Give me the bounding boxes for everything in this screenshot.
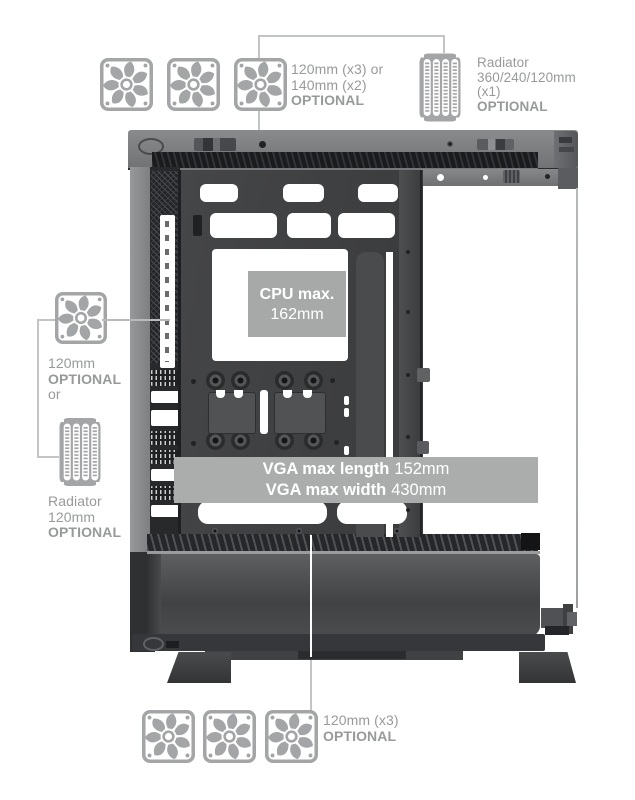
tray-screw: [394, 528, 400, 534]
case-top-latch-left: [194, 138, 236, 151]
front-corner-block: [558, 168, 578, 189]
bottom-fans-optional: OPTIONAL: [323, 729, 399, 745]
psu-shroud-left-edge: [145, 554, 161, 636]
bar-clip: [417, 441, 429, 454]
fan-icon: [55, 292, 107, 344]
cable-cutout: [200, 184, 238, 202]
top-radiator-label: Radiator 360/240/120mm (x1) OPTIONAL: [477, 56, 576, 114]
bottom-connector-gray: [310, 655, 312, 712]
top-radiator-title: Radiator: [477, 56, 576, 71]
bottom-badge: [143, 637, 164, 651]
tray-screw: [334, 440, 339, 445]
bar-hole: [406, 435, 410, 439]
top-radiator-qty: (x1): [477, 85, 576, 100]
top-fans-label-line2: 140mm (x2): [291, 78, 383, 94]
cable-cutout: [358, 184, 398, 202]
top-radiator-sizes: 360/240/120mm: [477, 71, 576, 86]
cable-grommet: [275, 371, 294, 390]
cable-cutout: [283, 184, 324, 202]
vga-length-value: 152mm: [394, 459, 449, 480]
tray-center-slot: [260, 390, 268, 434]
bottom-recess-notch: [298, 651, 406, 659]
bar-slot: [344, 396, 349, 405]
rail-screw: [545, 174, 550, 179]
vga-width-row: VGA max width 430mm: [266, 480, 446, 501]
fan-icon: [142, 710, 195, 763]
top-fans-label: 120mm (x3) or 140mm (x2) OPTIONAL: [291, 62, 383, 109]
vga-length-label: VGA max length: [263, 459, 390, 480]
left-fan-size: 120mm: [48, 356, 121, 372]
bar-hole: [406, 508, 410, 512]
bottom-fans-label: 120mm (x3) OPTIONAL: [323, 713, 399, 744]
tray-bottom-cutout: [337, 501, 407, 524]
fan-icon: [234, 58, 287, 111]
left-bracket-top: [37, 319, 56, 321]
bottom-latch: [166, 641, 179, 648]
front-bottom-bracket: [541, 604, 577, 638]
vga-width-value: 430mm: [391, 480, 446, 501]
case-top-screw: [259, 141, 266, 148]
ssd-notch: [283, 390, 292, 398]
cpu-max-label: CPU max. 162mm: [248, 271, 346, 337]
case-top-screw-right: [447, 141, 453, 147]
tray-screw: [330, 378, 335, 383]
cable-grommet: [206, 371, 225, 390]
expansion-slot-cover: [151, 505, 180, 517]
ssd-notch: [234, 390, 243, 398]
ssd-notch: [216, 390, 225, 398]
left-pointer-line: [102, 319, 170, 321]
left-radiator-title: Radiator: [48, 494, 121, 510]
rear-outer-strip: [130, 167, 150, 562]
bar-clip: [417, 368, 430, 382]
end-cap-slot: [559, 147, 574, 152]
ssd-bracket: [274, 392, 326, 434]
bar-slot: [344, 446, 349, 455]
rear-fan-rail-slots: [165, 221, 169, 362]
vga-length-row: VGA max length 152mm: [263, 459, 450, 480]
tray-screw: [212, 528, 218, 534]
expansion-vent-row: [151, 431, 180, 445]
tray-clip: [193, 215, 202, 236]
left-bracket-bottom: [37, 456, 59, 458]
glass-front-edge: [576, 188, 578, 608]
vga-width-label: VGA max width: [266, 480, 386, 501]
end-cap-slot: [559, 137, 572, 143]
left-fan-optional: OPTIONAL: [48, 372, 121, 388]
top-fans-label-line1: 120mm (x3) or: [291, 62, 383, 78]
rail-thumbnut: [503, 170, 520, 183]
shroud-shelf-end: [521, 533, 540, 550]
bar-hole: [406, 310, 410, 314]
cable-grommet: [304, 371, 323, 390]
cable-grommet: [231, 371, 250, 390]
rail-hole: [437, 174, 444, 181]
rail-hole: [483, 175, 488, 180]
cpu-max-title: CPU max.: [248, 285, 346, 304]
left-radiator-optional: OPTIONAL: [48, 525, 121, 541]
ssd-bracket: [208, 392, 256, 434]
bracket-step: [567, 612, 577, 626]
vga-spec-banner: VGA max length 152mm VGA max width 430mm: [174, 457, 538, 503]
bar-slot: [344, 408, 349, 417]
cable-cutout: [287, 213, 331, 238]
left-radiator-label: Radiator 120mm OPTIONAL: [48, 494, 121, 541]
tray-screw: [191, 379, 196, 384]
fan-icon: [203, 710, 256, 763]
case-top-latch-right: [477, 139, 514, 150]
cpu-max-value: 162mm: [248, 305, 346, 324]
tray-screw: [191, 441, 196, 446]
expansion-vent-row: [151, 370, 180, 386]
bar-hole: [406, 250, 410, 254]
fan-icon: [167, 58, 220, 111]
left-fan-label: 120mm OPTIONAL or: [48, 356, 121, 403]
fan-icon: [100, 58, 153, 111]
ssd-notch: [303, 390, 312, 398]
top-connector-horizontal: [258, 35, 444, 37]
bar-hole: [406, 373, 410, 377]
tray-bottom-cutout: [198, 501, 327, 524]
case-bottom-rail: [132, 634, 545, 651]
case-top-vent: [152, 152, 538, 168]
psu-shroud: [145, 554, 540, 636]
bottom-connector-white: [310, 535, 312, 657]
expansion-slot-cover: [151, 391, 180, 403]
case-foot-left: [167, 652, 231, 683]
bracket-base: [545, 626, 569, 635]
expansion-slot-cover: [151, 410, 180, 426]
shroud-vent-shelf: [147, 534, 538, 551]
radiator-icon: [418, 52, 462, 123]
fan-icon: [265, 710, 318, 763]
top-connector-vertical-right: [443, 35, 445, 53]
case-foot-right: [519, 652, 576, 683]
tray-screw: [296, 528, 302, 534]
left-bracket-vertical: [37, 319, 39, 457]
top-fans-label-optional: OPTIONAL: [291, 93, 383, 109]
radiator-icon: [58, 417, 102, 487]
infographic-canvas: 120mm (x3) or 140mm (x2) OPTIONAL Radiat…: [0, 0, 635, 800]
cable-cutout: [210, 213, 277, 238]
left-fan-or: or: [48, 387, 121, 403]
top-radiator-optional: OPTIONAL: [477, 100, 576, 115]
bottom-fans-size: 120mm (x3): [323, 713, 399, 729]
left-radiator-size: 120mm: [48, 510, 121, 526]
cable-cutout: [338, 213, 395, 238]
